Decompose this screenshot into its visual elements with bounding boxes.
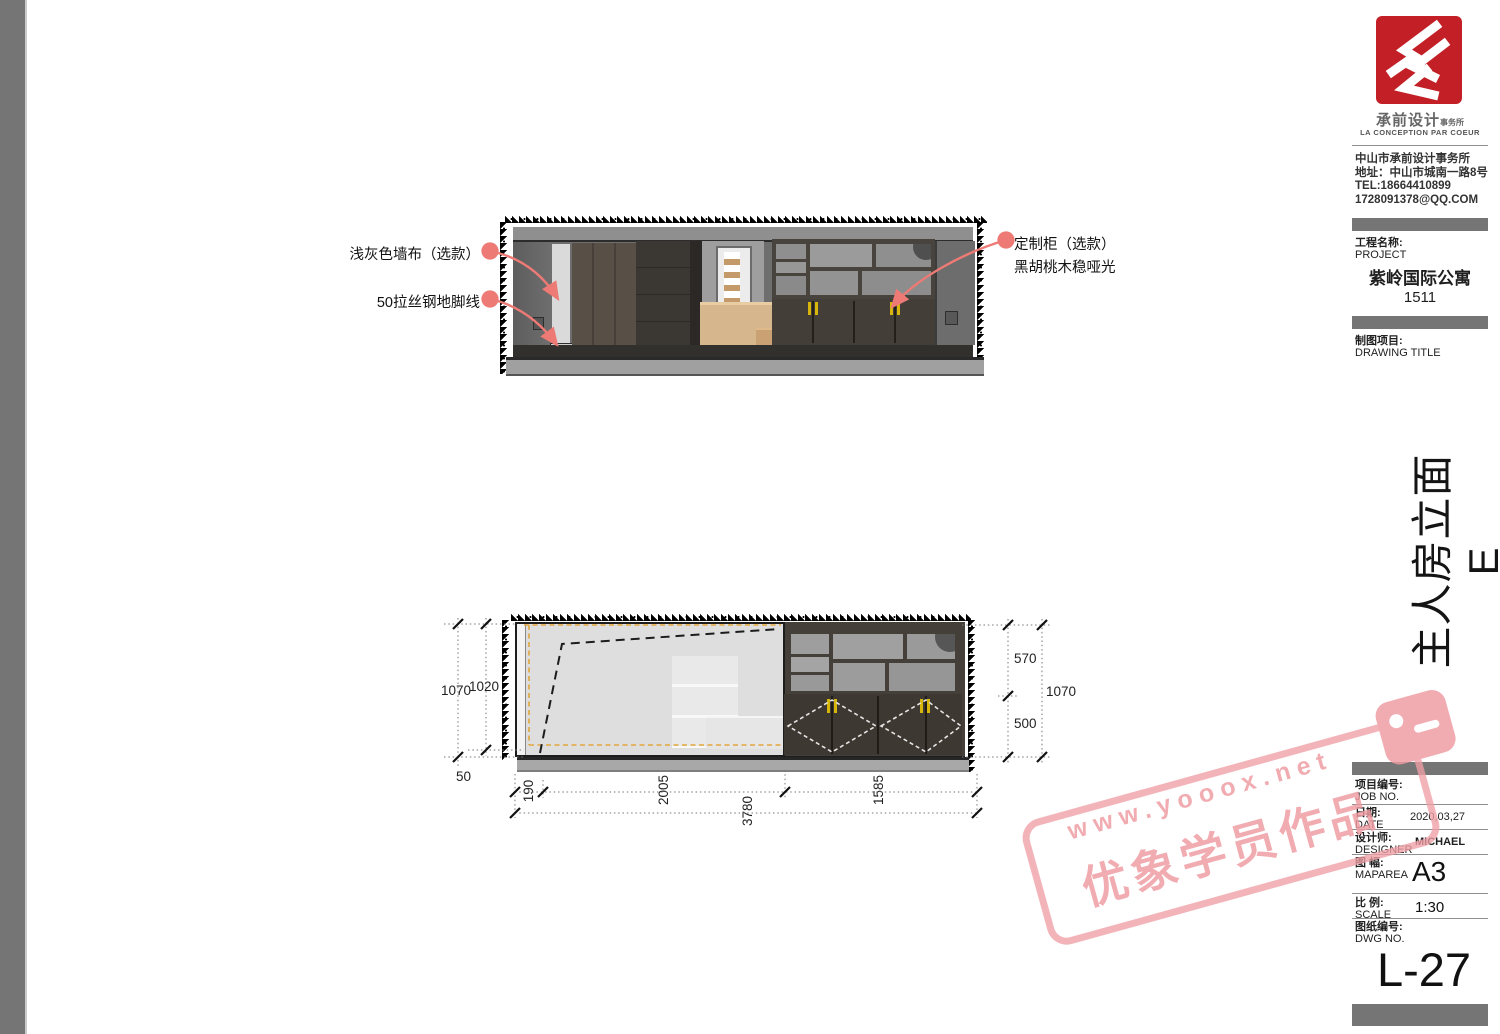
glass-pane	[776, 262, 806, 273]
glass-pane	[791, 657, 829, 672]
top-drawing-hatch-left	[500, 222, 508, 374]
annotation-skirting: 50拉丝钢地脚线	[340, 291, 480, 312]
elevation-cut-wall-strip	[517, 624, 526, 755]
wardrobe-b	[636, 241, 690, 345]
wood-shelf-stack	[724, 252, 740, 308]
watermark-elephant-icon	[1372, 687, 1458, 768]
dim-left-total: 1070	[441, 683, 471, 698]
top-drawing-floor-slab	[506, 357, 984, 376]
top-right-wall	[935, 241, 975, 345]
door-gap	[812, 301, 814, 343]
annotation-wall-fabric: 浅灰色墙布（选款）	[340, 243, 480, 264]
elevation-base-band	[517, 757, 969, 772]
dim-right-top: 570	[1014, 651, 1037, 666]
glass-pane	[791, 675, 829, 691]
door-handle	[927, 699, 930, 713]
section-bar	[1352, 316, 1488, 329]
dwg-no-label-cn: 图纸编号:	[1355, 921, 1403, 933]
dim-bottom-1585: 1585	[871, 768, 887, 812]
logo-chevrons-icon	[1376, 16, 1462, 104]
scale-value: 1:30	[1415, 899, 1444, 916]
left-edge-bar	[0, 0, 27, 1034]
brand-name-fr: LA CONCEPTION PAR COEUR	[1352, 128, 1488, 137]
divider	[1352, 918, 1488, 919]
glass-pane	[833, 663, 885, 691]
dim-right-bottom: 500	[1014, 716, 1037, 731]
section-bar	[1352, 218, 1488, 231]
contact-email: 1728091378@QQ.COM	[1355, 194, 1488, 208]
drawing-sheet: 承前设计事务所 LA CONCEPTION PAR COEUR 中山市承前设计事…	[0, 0, 1500, 1034]
brand-name-suffix: 事务所	[1440, 118, 1464, 127]
door-handle	[920, 699, 923, 713]
divider	[1352, 893, 1488, 894]
titleblock-bottom-bar	[1352, 1004, 1488, 1026]
wardrobe-a	[572, 243, 636, 345]
brand-name-cn: 承前设计	[1376, 112, 1440, 129]
glass-pane	[889, 663, 955, 691]
dim-bottom-190: 190	[521, 769, 537, 813]
glass-pane	[876, 244, 931, 267]
dim-right-total: 1070	[1046, 684, 1076, 699]
faint-platform	[706, 716, 784, 749]
project-label-en: PROJECT	[1355, 249, 1406, 261]
door-gap	[877, 696, 879, 754]
dwg-no-value: L-27	[1360, 942, 1488, 997]
elevation-cabinet-lower	[784, 694, 962, 755]
glass-pane	[907, 634, 955, 659]
door-gap	[831, 696, 833, 754]
contact-block: 中山市承前设计事务所 地址：中山市城南一路8号 TEL:18664410899 …	[1355, 153, 1488, 207]
dim-left-inner: 1020	[469, 679, 499, 694]
contact-address: 地址：中山市城南一路8号	[1355, 167, 1488, 181]
glass-pane	[862, 271, 931, 295]
vertical-drawing-title: 主人房立面E	[1399, 446, 1445, 676]
glass-reflection-blob	[935, 634, 955, 652]
drawing-title-label-en: DRAWING TITLE	[1355, 347, 1441, 359]
company-logo-icon	[1376, 16, 1462, 104]
top-drawing-floor	[513, 345, 973, 357]
glass-pane	[810, 271, 858, 295]
dim-skirting: 50	[456, 769, 471, 784]
door-handle	[890, 302, 893, 315]
door-gap	[853, 301, 855, 343]
annotation-cabinet-line2: 黑胡桃木稳哑光	[1014, 256, 1116, 277]
glass-pane	[776, 276, 806, 295]
project-label-cn: 工程名称:	[1355, 237, 1403, 249]
door-handle	[808, 302, 811, 315]
glass-pane	[810, 244, 872, 267]
glass-pane	[833, 634, 903, 659]
door-handle	[827, 699, 830, 713]
bottom-drawing-hatch-right	[968, 620, 976, 772]
project-name: 紫岭国际公寓	[1352, 264, 1488, 289]
dim-bottom-total: 3780	[740, 789, 756, 833]
door-handle	[815, 302, 818, 315]
contact-company: 中山市承前设计事务所	[1355, 153, 1488, 167]
annotation-cabinet-line1: 定制柜（选款）	[1014, 233, 1116, 254]
drawing-title-label-cn: 制图项目:	[1355, 335, 1403, 347]
glass-reflection-blob	[913, 244, 931, 260]
outlet-right	[945, 311, 958, 325]
maparea-label-en: MAPAREA	[1355, 869, 1408, 881]
glass-pane	[791, 634, 829, 654]
bottom-drawing-hatch-top	[511, 613, 971, 621]
top-drawing-hatch-top	[505, 215, 987, 223]
door-handle	[834, 699, 837, 713]
scale-label-en: SCALE	[1355, 909, 1391, 921]
project-unit: 1511	[1352, 289, 1488, 306]
scale-label-cn: 比 例:	[1355, 897, 1384, 909]
top-drawing-hatch-right	[977, 222, 985, 374]
door-handle	[897, 302, 900, 315]
dim-bottom-2005: 2005	[656, 768, 672, 812]
contact-tel: TEL:18664410899	[1355, 180, 1488, 194]
bottom-drawing-hatch-left	[502, 620, 510, 760]
door-gap	[894, 301, 896, 343]
outlet-left	[533, 317, 544, 330]
wall-fabric-strip	[552, 244, 570, 344]
divider	[1352, 145, 1488, 146]
brand-name: 承前设计事务所	[1352, 109, 1488, 130]
maparea-value: A3	[1412, 856, 1446, 888]
glass-pane	[776, 244, 806, 259]
